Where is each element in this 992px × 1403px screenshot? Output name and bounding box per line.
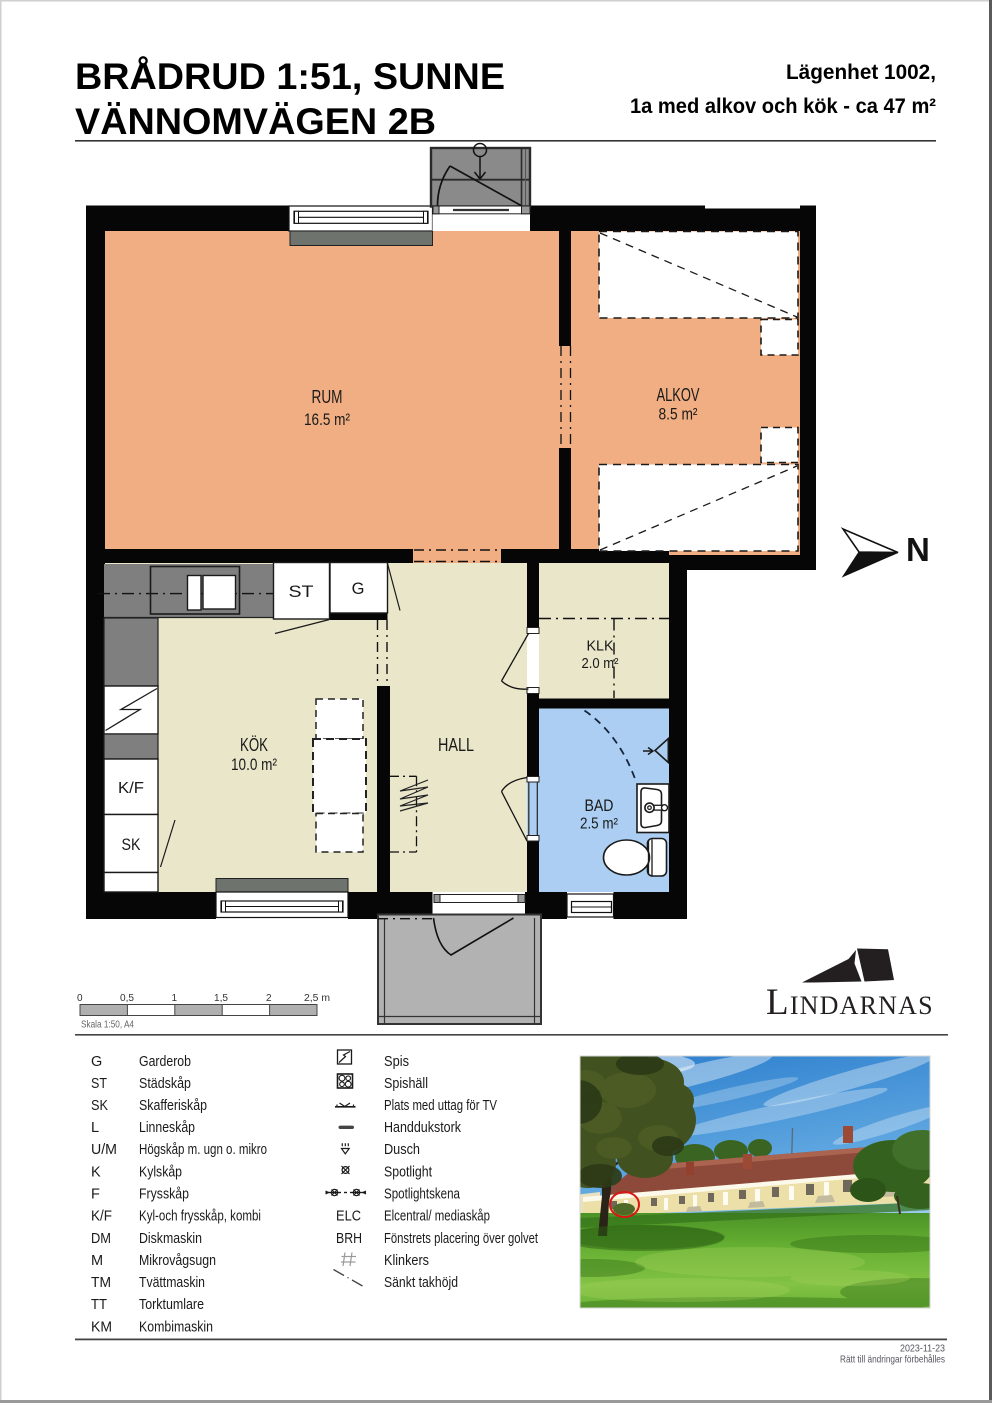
svg-text:Handdukstork: Handdukstork bbox=[384, 1120, 462, 1136]
svg-text:Garderob: Garderob bbox=[139, 1054, 191, 1070]
svg-text:Kylskåp: Kylskåp bbox=[139, 1165, 182, 1181]
svg-text:Spis: Spis bbox=[384, 1054, 409, 1070]
svg-text:Tvättmaskin: Tvättmaskin bbox=[139, 1275, 205, 1291]
svg-text:BRH: BRH bbox=[336, 1231, 362, 1247]
svg-text:G: G bbox=[352, 580, 365, 598]
svg-text:U/M: U/M bbox=[91, 1142, 117, 1158]
svg-text:Mikrovågsugn: Mikrovågsugn bbox=[139, 1253, 216, 1269]
svg-text:2: 2 bbox=[266, 993, 272, 1004]
svg-text:ELC: ELC bbox=[336, 1209, 361, 1225]
svg-text:K: K bbox=[91, 1165, 101, 1181]
svg-text:10.0 m²: 10.0 m² bbox=[231, 755, 277, 774]
svg-text:0,5: 0,5 bbox=[120, 993, 134, 1004]
svg-text:KM: KM bbox=[91, 1320, 112, 1336]
svg-text:Högskåp m. ugn o. mikro: Högskåp m. ugn o. mikro bbox=[139, 1142, 267, 1158]
svg-text:DM: DM bbox=[91, 1231, 111, 1247]
svg-text:Elcentral/ mediaskåp: Elcentral/ mediaskåp bbox=[384, 1209, 490, 1225]
svg-text:Fönstrets placering över golve: Fönstrets placering över golvet bbox=[384, 1231, 538, 1247]
svg-text:Spotlightskena: Spotlightskena bbox=[384, 1187, 461, 1203]
svg-text:SK: SK bbox=[122, 836, 141, 854]
svg-text:Skafferiskåp: Skafferiskåp bbox=[139, 1098, 207, 1114]
svg-text:2023-11-23: 2023-11-23 bbox=[900, 1344, 945, 1355]
svg-text:Plats med uttag för TV: Plats med uttag för TV bbox=[384, 1098, 497, 1114]
svg-text:KÖK: KÖK bbox=[240, 735, 268, 755]
svg-text:Diskmaskin: Diskmaskin bbox=[139, 1231, 202, 1247]
svg-text:2.5 m²: 2.5 m² bbox=[580, 816, 618, 833]
svg-text:K/F: K/F bbox=[91, 1209, 112, 1225]
svg-text:L: L bbox=[91, 1120, 99, 1136]
svg-text:BRÅDRUD 1:51, SUNNE: BRÅDRUD 1:51, SUNNE bbox=[75, 56, 505, 97]
svg-text:K/F: K/F bbox=[118, 780, 144, 797]
svg-text:N: N bbox=[906, 531, 930, 568]
svg-text:Städskåp: Städskåp bbox=[139, 1076, 191, 1092]
svg-text:BAD: BAD bbox=[585, 797, 614, 815]
svg-text:ST: ST bbox=[289, 583, 314, 601]
svg-text:ST: ST bbox=[91, 1076, 107, 1092]
svg-text:Frysskåp: Frysskåp bbox=[139, 1187, 189, 1203]
svg-text:2.0 m²: 2.0 m² bbox=[582, 656, 619, 672]
svg-text:8.5 m²: 8.5 m² bbox=[659, 405, 698, 424]
svg-text:2,5 m: 2,5 m bbox=[304, 993, 330, 1004]
svg-text:Kyl-och frysskåp, kombi: Kyl-och frysskåp, kombi bbox=[139, 1209, 261, 1225]
svg-text:Rätt till ändringar förbehålle: Rätt till ändringar förbehålles bbox=[840, 1354, 945, 1366]
svg-text:1a med alkov och kök - ca 47: 1a med alkov och kök - ca 47 m² bbox=[630, 95, 936, 118]
svg-text:VÄNNOMVÄGEN 2B: VÄNNOMVÄGEN 2B bbox=[75, 101, 436, 142]
svg-text:16.5 m²: 16.5 m² bbox=[304, 410, 350, 429]
svg-text:TM: TM bbox=[91, 1275, 111, 1291]
svg-text:TT: TT bbox=[91, 1297, 107, 1313]
svg-text:SK: SK bbox=[91, 1098, 108, 1114]
svg-text:Klinkers: Klinkers bbox=[384, 1253, 429, 1269]
svg-text:Lägenhet 1002,: Lägenhet 1002, bbox=[786, 61, 936, 84]
svg-text:G: G bbox=[91, 1054, 102, 1070]
svg-text:1,5: 1,5 bbox=[214, 993, 228, 1004]
svg-text:F: F bbox=[91, 1187, 100, 1203]
svg-text:Sänkt takhöjd: Sänkt takhöjd bbox=[384, 1275, 458, 1291]
svg-text:Spotlight: Spotlight bbox=[384, 1165, 432, 1181]
svg-text:M: M bbox=[91, 1253, 103, 1269]
svg-text:ALKOV: ALKOV bbox=[657, 385, 700, 405]
svg-text:Kombimaskin: Kombimaskin bbox=[139, 1320, 213, 1336]
svg-text:1: 1 bbox=[172, 993, 178, 1004]
svg-text:HALL: HALL bbox=[438, 735, 474, 755]
svg-text:Skala 1:50, A4: Skala 1:50, A4 bbox=[81, 1020, 134, 1031]
svg-text:Dusch: Dusch bbox=[384, 1142, 420, 1158]
svg-text:KLK: KLK bbox=[587, 638, 614, 655]
svg-text:0: 0 bbox=[77, 993, 83, 1004]
svg-text:Spishäll: Spishäll bbox=[384, 1076, 428, 1092]
svg-text:Torktumlare: Torktumlare bbox=[139, 1297, 204, 1313]
svg-text:Linneskåp: Linneskåp bbox=[139, 1120, 195, 1136]
svg-text:RUM: RUM bbox=[312, 387, 343, 407]
